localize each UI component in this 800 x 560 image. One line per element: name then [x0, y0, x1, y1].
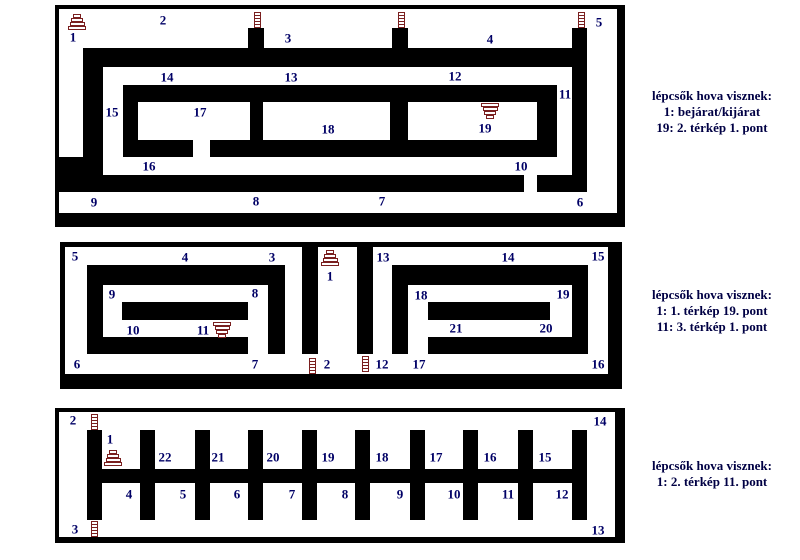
maze-border-wall [615, 408, 625, 543]
map-point-label-19: 19 [479, 122, 492, 135]
maze-wall [59, 157, 83, 175]
legend-map-2: lépcsők hova visznek: 1: 1. térkép 19. p… [630, 287, 794, 335]
maze-wall [357, 247, 373, 354]
legend-entry: 11: 3. térkép 1. pont [630, 319, 794, 335]
stairs-up-icon [104, 450, 122, 466]
ladder-icon [254, 12, 261, 28]
maze-wall [355, 430, 370, 469]
map-point-label-6: 6 [234, 488, 241, 501]
map-point-label-10: 10 [127, 324, 140, 337]
maze-border-wall [608, 242, 622, 389]
stairs-down-icon [481, 103, 499, 119]
map-point-label-15: 15 [539, 451, 552, 464]
map-point-label-13: 13 [592, 524, 605, 537]
map-point-label-17: 17 [194, 106, 207, 119]
maze-room [193, 140, 210, 157]
maze-wall [195, 483, 210, 520]
map-point-label-5: 5 [72, 250, 79, 263]
map-point-label-22: 22 [159, 451, 172, 464]
map-point-label-18: 18 [415, 289, 428, 302]
map-point-label-17: 17 [430, 451, 443, 464]
maze-wall [248, 28, 264, 50]
map-point-label-11: 11 [559, 88, 571, 101]
maze-wall [392, 28, 408, 50]
maze-wall [392, 265, 588, 285]
map-point-label-4: 4 [182, 251, 189, 264]
map-point-label-13: 13 [377, 251, 390, 264]
maze-border-wall [55, 408, 625, 412]
maze-border-wall [60, 242, 65, 389]
map-point-label-8: 8 [252, 287, 259, 300]
map-point-label-19: 19 [557, 288, 570, 301]
map-panel-1: 12345141312111517181916109876 [55, 5, 625, 227]
map-point-label-10: 10 [515, 160, 528, 173]
maze-border-wall [55, 408, 59, 543]
maze-wall [463, 430, 478, 469]
maze-wall [248, 483, 263, 520]
maze-wall [428, 302, 550, 320]
maze-wall [83, 48, 572, 67]
map-point-label-21: 21 [212, 451, 225, 464]
map-point-label-3: 3 [269, 251, 276, 264]
maze-wall [87, 469, 587, 483]
legend-entry: 1: bejárat/kijárat [630, 104, 794, 120]
map-point-label-7: 7 [252, 358, 259, 371]
map-point-label-6: 6 [577, 196, 584, 209]
map-point-label-4: 4 [126, 488, 133, 501]
maze-wall [87, 337, 248, 354]
map-point-label-6: 6 [74, 358, 81, 371]
maze-border-wall [55, 5, 59, 227]
map-point-label-8: 8 [253, 195, 260, 208]
map-point-label-17: 17 [413, 358, 426, 371]
maze-border-wall [60, 374, 622, 389]
maze-wall [302, 430, 317, 469]
map-point-label-9: 9 [91, 196, 98, 209]
legend-map-1: lépcsők hova visznek: 1: bejárat/kijárat… [630, 88, 794, 136]
map-panel-3: 21431312221201918171615456789101112 [55, 408, 625, 543]
ladder-icon [578, 12, 585, 28]
maze-wall [195, 430, 210, 469]
legend-entry: 1: 1. térkép 19. pont [630, 303, 794, 319]
map-point-label-11: 11 [502, 488, 514, 501]
maze-wall [140, 483, 155, 520]
map-point-label-14: 14 [502, 251, 515, 264]
map-point-label-1: 1 [70, 31, 77, 44]
map-point-label-18: 18 [322, 123, 335, 136]
maze-wall [355, 483, 370, 520]
maze-wall [463, 483, 478, 520]
maze-border-wall [60, 242, 622, 247]
map-panel-2: 543113141598181910112120672121716 [60, 242, 622, 389]
maze-wall [518, 483, 533, 520]
map-point-label-9: 9 [109, 288, 116, 301]
legend-title: lépcsők hova visznek: [630, 88, 794, 104]
map-point-label-18: 18 [376, 451, 389, 464]
map-point-label-4: 4 [487, 33, 494, 46]
map-point-label-15: 15 [592, 250, 605, 263]
map-point-label-13: 13 [285, 71, 298, 84]
maze-wall [140, 430, 155, 469]
maze-wall [537, 175, 587, 192]
map-point-label-2: 2 [70, 414, 77, 427]
map-point-label-2: 2 [160, 14, 167, 27]
map-point-label-8: 8 [342, 488, 349, 501]
maze-wall [87, 265, 285, 285]
maze-wall [572, 28, 587, 190]
maze-wall [302, 247, 318, 354]
map-point-label-9: 9 [397, 488, 404, 501]
legend-map-3: lépcsők hova visznek: 1: 2. térkép 11. p… [630, 458, 794, 490]
maze-wall [518, 430, 533, 469]
map-point-label-14: 14 [161, 71, 174, 84]
maze-wall [428, 337, 588, 354]
maze-room [408, 102, 537, 140]
map-point-label-12: 12 [376, 358, 389, 371]
ladder-icon [398, 12, 405, 28]
maze-wall [268, 265, 285, 354]
maze-wall [302, 483, 317, 520]
maze-border-wall [55, 537, 625, 543]
map-point-label-1: 1 [327, 270, 334, 283]
stairs-down-icon [213, 322, 231, 338]
map-point-label-11: 11 [197, 324, 209, 337]
map-point-label-15: 15 [106, 106, 119, 119]
maze-wall [248, 430, 263, 469]
map-point-label-7: 7 [289, 488, 296, 501]
map-point-label-3: 3 [285, 32, 292, 45]
stairs-up-icon [321, 250, 339, 266]
legend-title: lépcsők hova visznek: [630, 287, 794, 303]
map-point-label-5: 5 [596, 16, 603, 29]
map-point-label-16: 16 [143, 160, 156, 173]
map-point-label-1: 1 [107, 433, 114, 446]
maze-border-wall [55, 5, 625, 9]
legend-entry: 1: 2. térkép 11. pont [630, 474, 794, 490]
maze-wall [83, 48, 103, 175]
map-point-label-14: 14 [594, 415, 607, 428]
maze-wall [410, 483, 425, 520]
map-point-label-16: 16 [484, 451, 497, 464]
map-point-label-21: 21 [450, 322, 463, 335]
ladder-icon [309, 358, 316, 374]
maze-wall [122, 302, 248, 320]
map-point-label-5: 5 [180, 488, 187, 501]
map-point-label-2: 2 [324, 358, 331, 371]
map-point-label-10: 10 [448, 488, 461, 501]
maze-border-wall [617, 5, 625, 227]
legend-entry: 19: 2. térkép 1. pont [630, 120, 794, 136]
stairs-up-icon [68, 14, 86, 30]
ladder-icon [91, 521, 98, 537]
map-point-label-7: 7 [379, 195, 386, 208]
maze-border-wall [55, 213, 625, 227]
map-point-label-20: 20 [267, 451, 280, 464]
map-point-label-16: 16 [592, 358, 605, 371]
legend-title: lépcsők hova visznek: [630, 458, 794, 474]
maze-maps-page: 12345141312111517181916109876 5431131415… [0, 0, 800, 560]
maze-wall [59, 175, 524, 192]
map-point-label-3: 3 [72, 523, 79, 536]
maze-wall [410, 430, 425, 469]
map-point-label-20: 20 [540, 322, 553, 335]
ladder-icon [91, 414, 98, 430]
map-point-label-12: 12 [449, 70, 462, 83]
map-point-label-12: 12 [556, 488, 569, 501]
ladder-icon [362, 356, 369, 372]
map-point-label-19: 19 [322, 451, 335, 464]
